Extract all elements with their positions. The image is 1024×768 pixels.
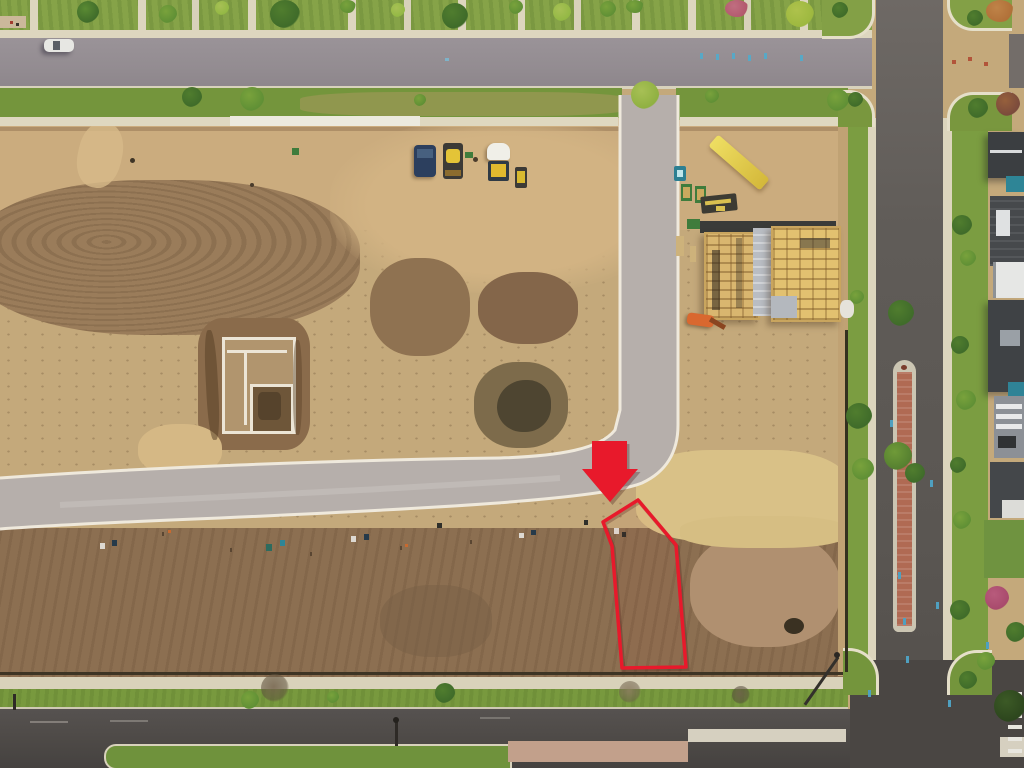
red-arrow-marker <box>582 441 638 502</box>
red-lot-outline <box>603 500 686 668</box>
aerial-photo <box>0 0 1024 768</box>
annotation-overlay <box>0 0 1024 768</box>
